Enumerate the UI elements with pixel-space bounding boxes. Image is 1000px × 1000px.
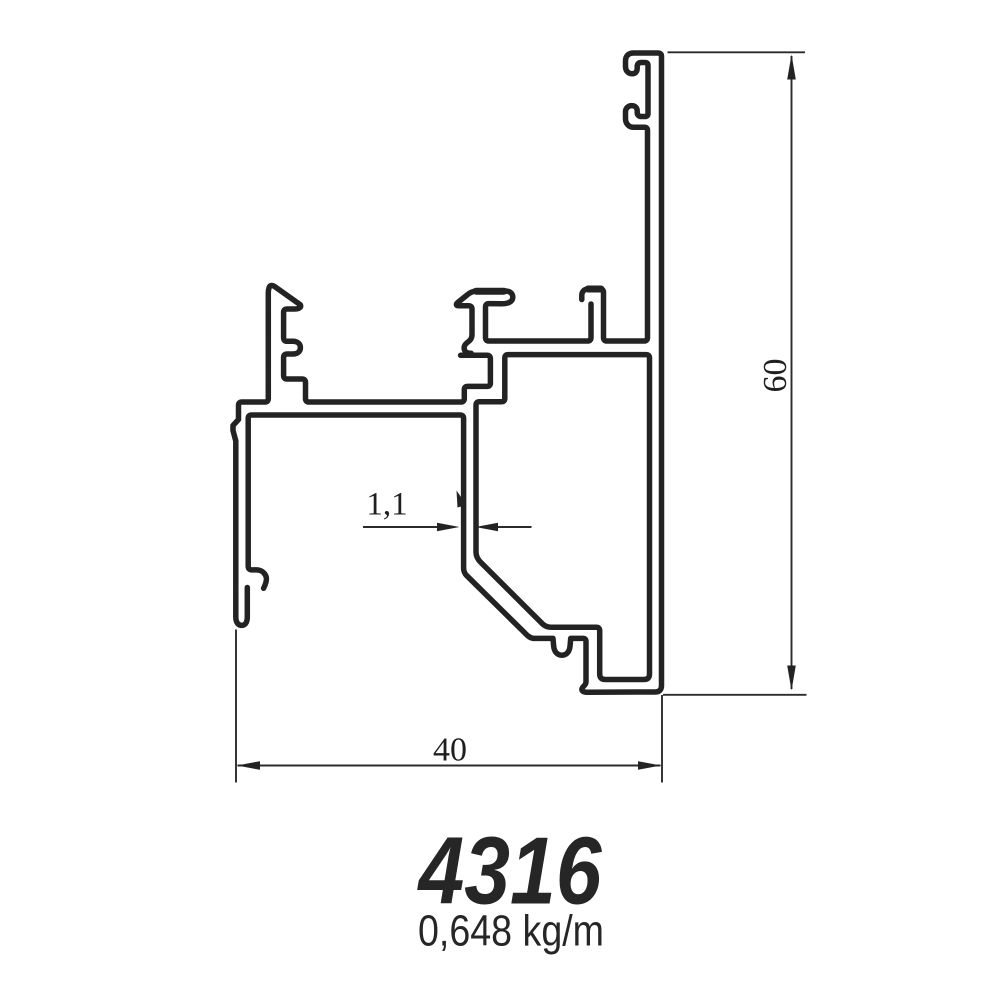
svg-text:0,648 kg/m: 0,648 kg/m <box>418 908 604 956</box>
svg-text:40: 40 <box>433 732 467 769</box>
svg-text:60: 60 <box>757 359 794 393</box>
svg-text:1,1: 1,1 <box>366 487 407 523</box>
